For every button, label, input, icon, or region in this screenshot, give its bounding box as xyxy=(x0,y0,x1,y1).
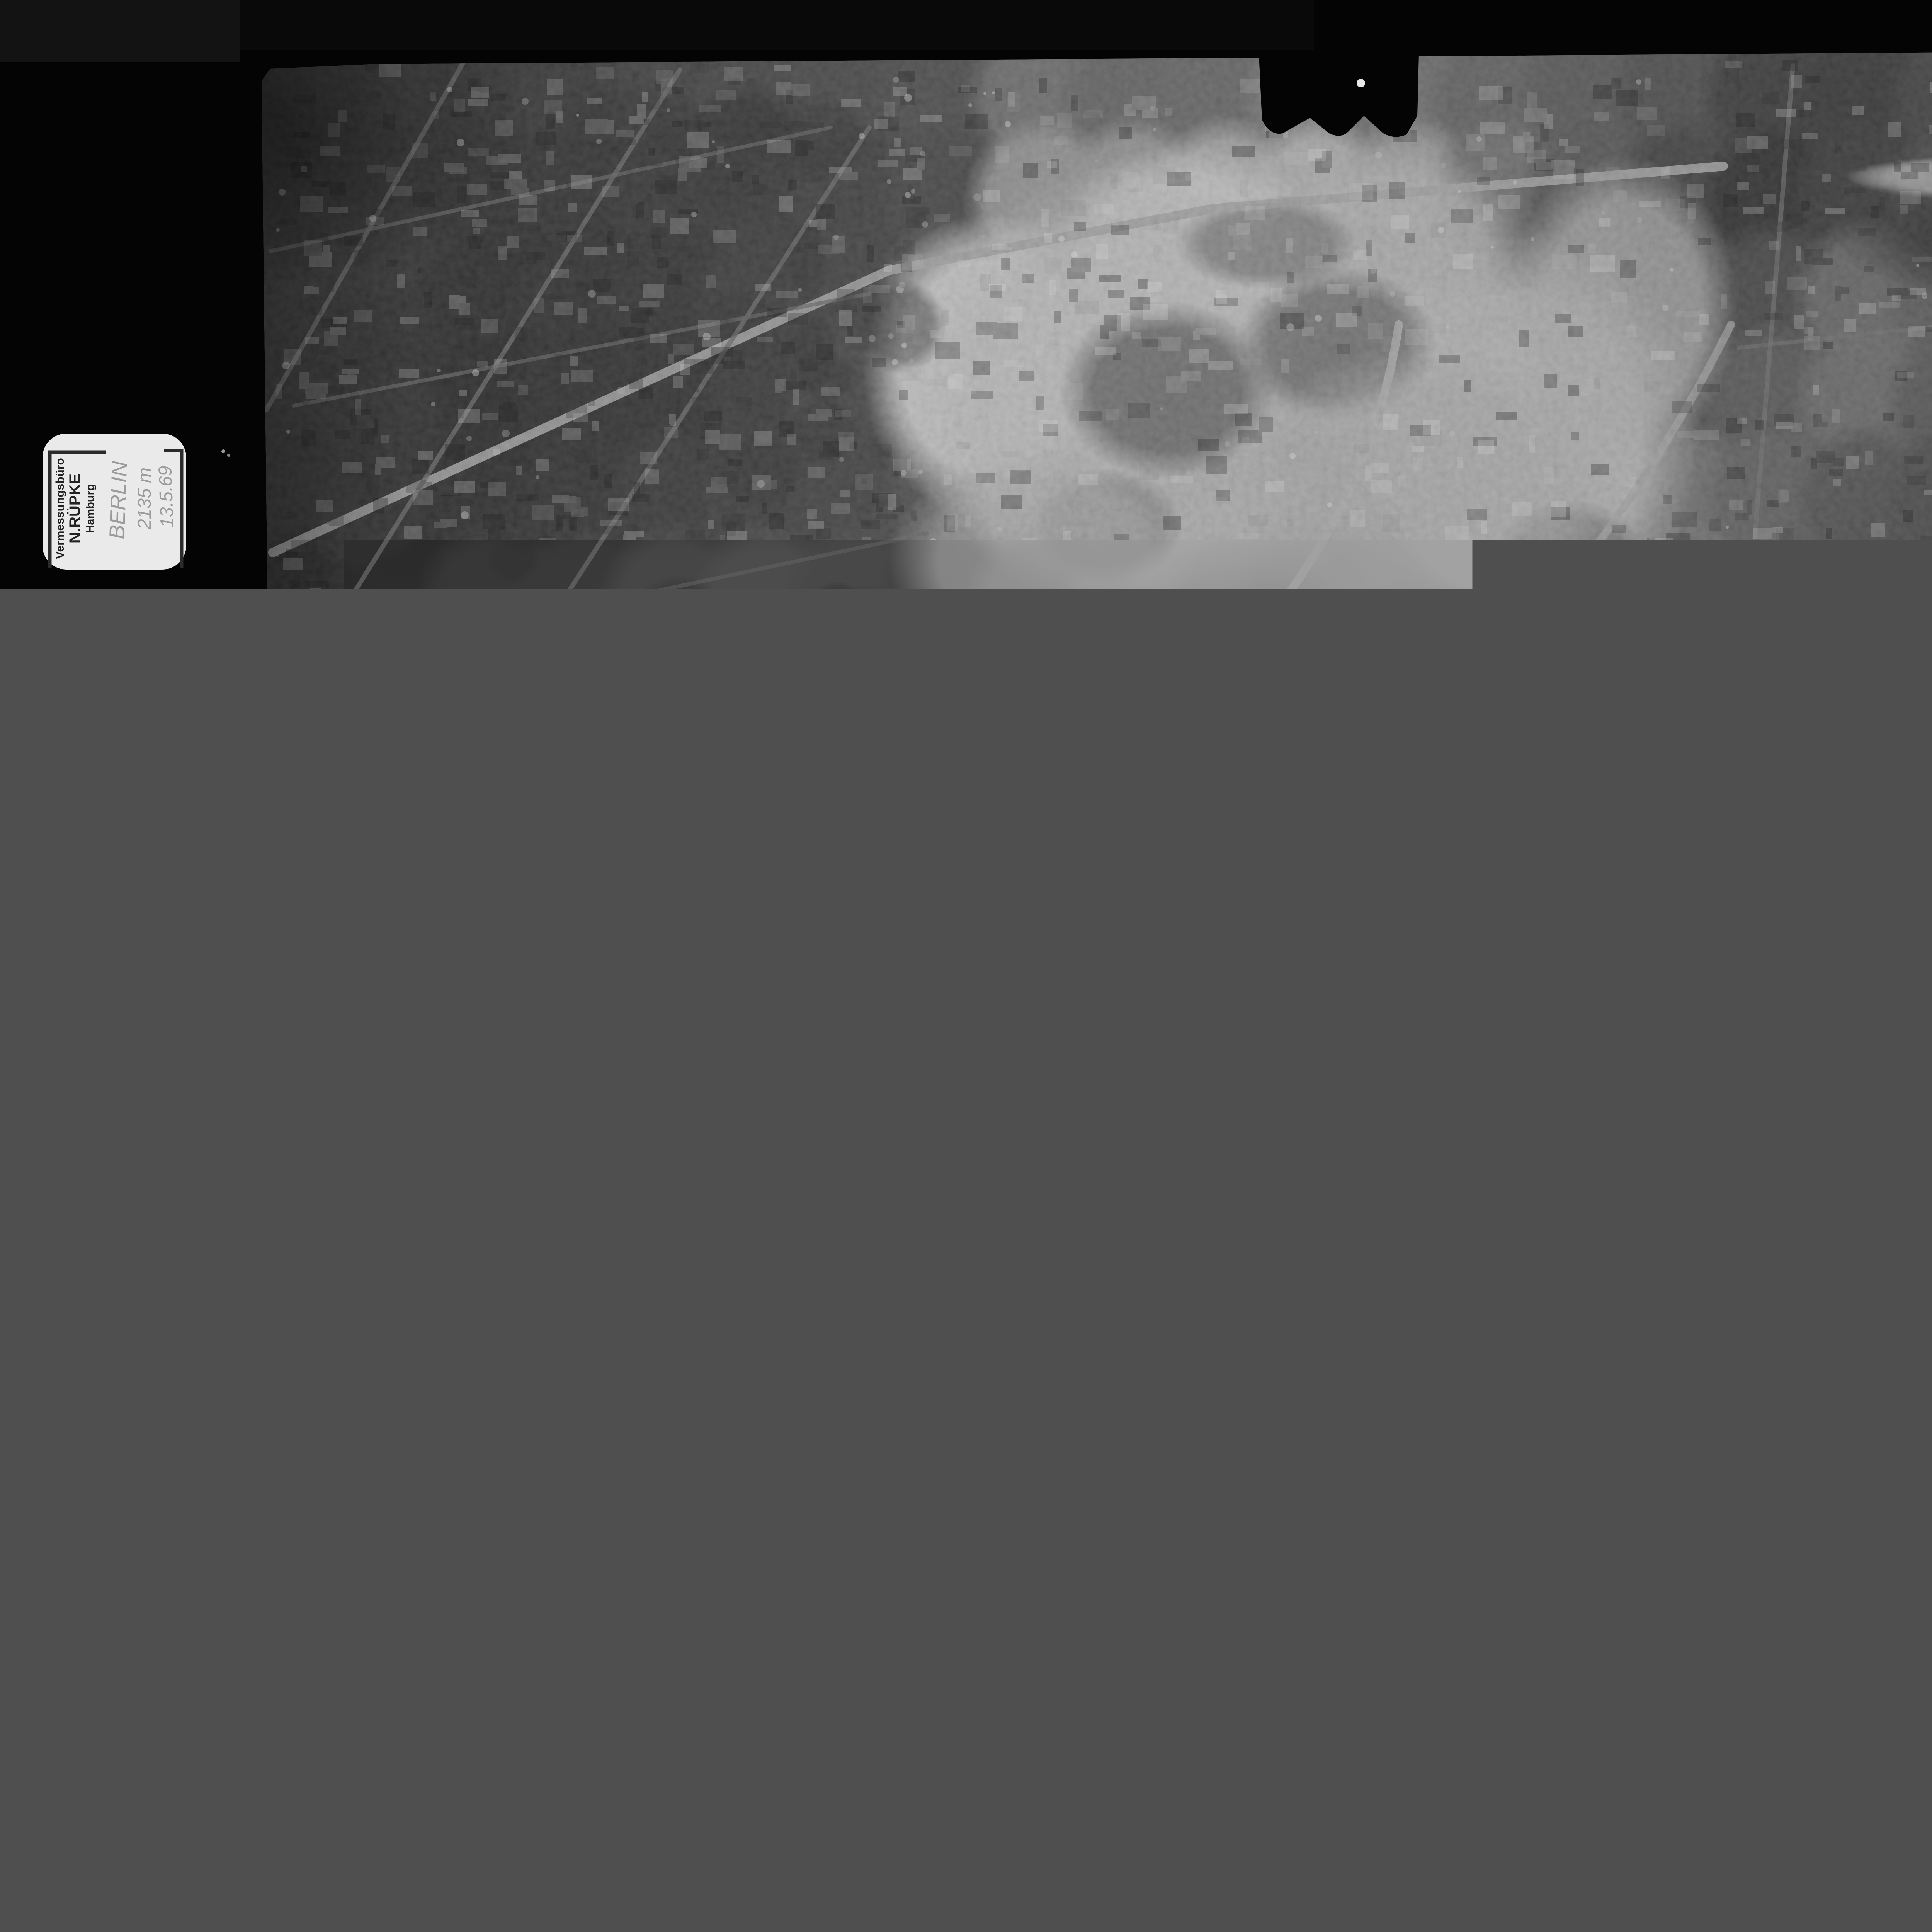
svg-text:13.5.69: 13.5.69 xyxy=(155,466,178,528)
svg-text:9: 9 xyxy=(111,964,131,974)
svg-text:11: 11 xyxy=(71,936,91,954)
svg-text:Vermessungsbüro: Vermessungsbüro xyxy=(54,458,66,559)
svg-text:0: 0 xyxy=(79,1715,101,1726)
svg-text:6: 6 xyxy=(158,917,178,927)
svg-text:Hamburg: Hamburg xyxy=(84,484,97,533)
svg-text:12: 12 xyxy=(65,912,85,932)
svg-text:7: 7 xyxy=(152,940,172,950)
svg-text:−0,5: −0,5 xyxy=(165,1621,177,1644)
svg-text:1°=2,5×10⁻⁶A: 1°=2,5×10⁻⁶A xyxy=(140,1672,156,1764)
svg-text:1: 1 xyxy=(71,894,91,904)
svg-text:N.RÜPKE: N.RÜPKE xyxy=(66,474,83,543)
svg-text:5: 5 xyxy=(152,894,172,904)
svg-text:BERLIN: BERLIN xyxy=(105,461,132,540)
svg-text:2135 m: 2135 m xyxy=(134,468,155,530)
svg-text:8: 8 xyxy=(134,957,155,968)
svg-text:2: 2 xyxy=(88,876,108,886)
